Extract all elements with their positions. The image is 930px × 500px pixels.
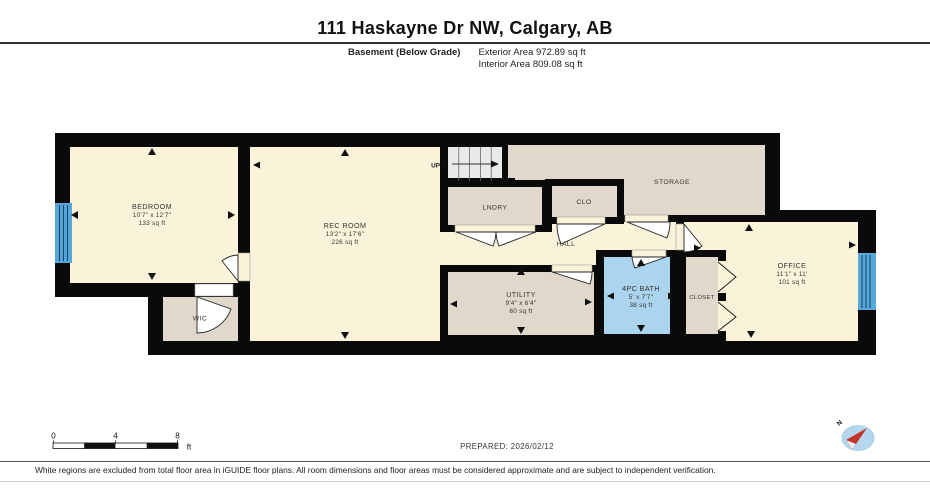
clo-label: CLO [576, 199, 591, 206]
lndry-label: LNDRY [483, 205, 508, 212]
scale-tick-8: 8 [175, 432, 180, 441]
office-area: 101 sq ft [779, 279, 806, 286]
rec-room-area: 226 sq ft [332, 239, 359, 246]
utility-label: UTILITY [506, 290, 536, 299]
prepared-date: PREPARED: 2026/02/12 [460, 442, 554, 451]
compass-icon: N [836, 419, 874, 451]
footer-disclaimer: White regions are excluded from total fl… [35, 465, 930, 475]
closet-label: CLOSET [689, 295, 714, 301]
footer-divider [0, 481, 930, 482]
rec-room-label: REC ROOM [324, 221, 367, 230]
bedroom-window [55, 203, 72, 263]
floor-plan-svg: UP BEDROOM 10'7" x 12'7" 133 sq ft REC R… [0, 0, 930, 500]
utility-area: 60 sq ft [509, 308, 532, 315]
bath-area: 38 sq ft [629, 302, 652, 309]
bath-label: 4PC BATH [622, 284, 660, 293]
rec-room-dims: 13'2" x 17'6" [326, 231, 364, 238]
wic-label: WIC [193, 316, 207, 323]
hall-label: HALL [557, 241, 576, 248]
footer: White regions are excluded from total fl… [0, 461, 930, 475]
office-window [858, 253, 876, 310]
bedroom-dims: 10'7" x 12'7" [133, 212, 171, 219]
office-dims: 11'1" x 11' [776, 271, 807, 278]
office-label: OFFICE [778, 261, 807, 270]
scale-tick-4: 4 [113, 432, 118, 441]
bedroom-label: BEDROOM [132, 202, 172, 211]
scale-tick-0: 0 [51, 432, 56, 441]
utility-dims: 9'4" x 6'4" [506, 300, 537, 307]
bedroom-area: 133 sq ft [139, 220, 166, 227]
bath-dims: 5' x 7'7" [629, 294, 654, 301]
scale-bar: 0 4 8 ft [51, 432, 192, 452]
stairs-up-label: UP [431, 163, 441, 170]
scale-unit: ft [187, 443, 192, 452]
compass-north-label: N [836, 419, 844, 428]
storage-label: STORAGE [654, 179, 690, 186]
